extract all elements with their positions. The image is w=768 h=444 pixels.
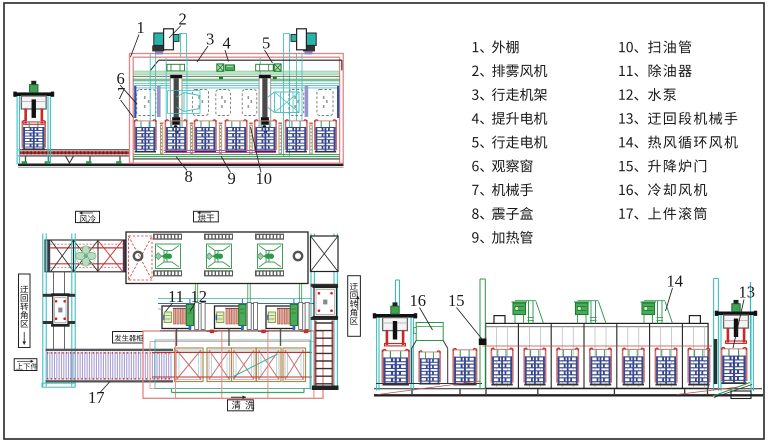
svg-text:7: 7 xyxy=(117,84,125,103)
svg-text:3: 3 xyxy=(206,30,214,49)
svg-text:16: 16 xyxy=(410,291,427,310)
svg-text:17: 17 xyxy=(88,388,105,407)
svg-text:1: 1 xyxy=(137,18,145,37)
svg-text:5: 5 xyxy=(262,34,270,53)
svg-text:4: 4 xyxy=(223,34,231,53)
svg-text:15: 15 xyxy=(448,291,465,310)
svg-text:14: 14 xyxy=(667,272,684,291)
svg-text:11: 11 xyxy=(168,287,184,306)
svg-text:13: 13 xyxy=(739,283,756,302)
svg-text:2: 2 xyxy=(179,10,187,29)
svg-text:9: 9 xyxy=(228,169,236,188)
svg-text:12: 12 xyxy=(191,287,208,306)
svg-text:10: 10 xyxy=(256,169,273,188)
svg-text:8: 8 xyxy=(185,167,193,186)
